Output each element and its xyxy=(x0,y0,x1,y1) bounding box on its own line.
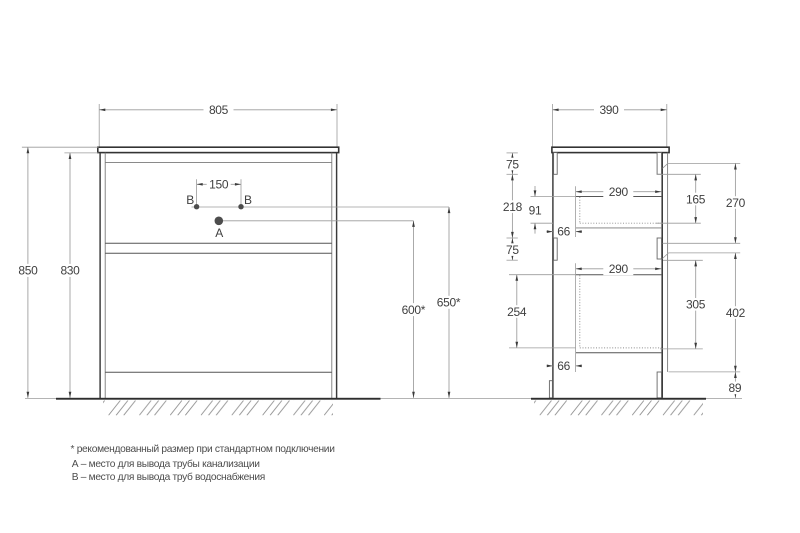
svg-text:66: 66 xyxy=(557,359,570,373)
svg-text:290: 290 xyxy=(609,185,629,199)
svg-text:75: 75 xyxy=(506,243,519,257)
svg-text:91: 91 xyxy=(529,204,542,218)
svg-text:75: 75 xyxy=(506,157,519,171)
svg-text:* рекомендованный размер при с: * рекомендованный размер при стандартном… xyxy=(71,444,335,455)
svg-text:А – место для вывода трубы кан: А – место для вывода трубы канализации xyxy=(72,458,260,470)
svg-text:650*: 650* xyxy=(437,296,461,310)
svg-text:В – место для вывода труб водо: В – место для вывода труб водоснабжения xyxy=(72,471,265,483)
svg-text:254: 254 xyxy=(507,305,527,319)
svg-text:270: 270 xyxy=(726,196,746,210)
svg-text:150: 150 xyxy=(209,178,229,192)
svg-text:66: 66 xyxy=(557,225,570,239)
svg-text:B: B xyxy=(186,193,194,207)
svg-text:89: 89 xyxy=(729,381,742,395)
svg-text:390: 390 xyxy=(599,103,619,117)
svg-text:600*: 600* xyxy=(402,303,426,317)
svg-text:850: 850 xyxy=(18,264,38,278)
svg-text:165: 165 xyxy=(686,192,706,206)
svg-text:290: 290 xyxy=(609,262,629,276)
svg-text:218: 218 xyxy=(503,200,523,214)
svg-text:B: B xyxy=(244,193,252,207)
svg-text:805: 805 xyxy=(209,103,229,117)
svg-text:402: 402 xyxy=(726,306,746,320)
svg-text:A: A xyxy=(215,226,223,240)
svg-text:830: 830 xyxy=(60,264,80,278)
svg-text:305: 305 xyxy=(686,298,706,312)
